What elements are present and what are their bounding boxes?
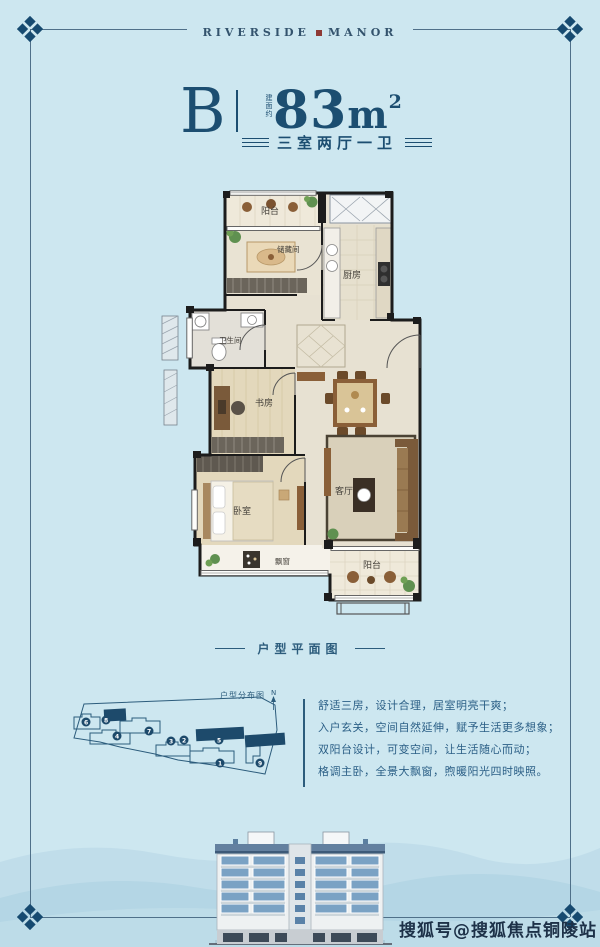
unit-layout-row: 三室两厅一卫 [242,132,432,153]
svg-text:2: 2 [182,737,186,744]
brand-title: RIVERSIDEMANOR [187,26,414,39]
frame-left-line [30,29,31,917]
caption-text: 户型平面图 [257,640,342,657]
building-elevation-art [203,826,398,947]
description-line: 入户玄关，空间自然延伸，赋予生活更多想象； [318,721,548,734]
svg-text:N: N [271,689,277,697]
room-label-balcony-top: 阳台 [261,205,279,217]
brand-square-icon [316,30,322,36]
unit-layout: 三室两厅一卫 [277,132,397,153]
svg-text:5: 5 [217,737,221,744]
svg-text:1: 1 [218,760,222,767]
unit-letter: B [180,80,226,142]
corner-diamond-ornament [17,16,43,42]
room-label-bay-window: 飘窗 [275,556,290,566]
description-block: 舒适三房，设计合理，居室明亮干爽； 入户玄关，空间自然延伸，赋予生活更多想象； … [303,699,548,787]
brand-left: RIVERSIDE [203,26,310,39]
triple-lines-right [405,138,432,148]
svg-text:4: 4 [115,733,119,740]
description-line: 双阳台设计，可变空间，让生活随心而动； [318,743,548,756]
floor-plan-drawing: 阳台 储藏间 厨房 卫生间 书房 卧室 飘窗 客厅 阳台 [158,186,426,618]
svg-text:9: 9 [258,760,262,767]
site-plan-map: 户型分布图 N 6 8 4 7 3 2 5 1 9 [60,684,295,792]
header: RIVERSIDEMANOR [0,21,600,40]
watermark-text: 搜狐号@搜狐焦点铜陵站 [399,916,597,941]
room-label-study: 书房 [255,397,273,409]
corner-diamond-ornament [17,904,43,930]
unit-title-block: B 建面约 83m2 三室两厅一卫 [180,80,420,160]
room-label-balcony-bottom: 阳台 [363,559,381,571]
frame-right-line [570,29,571,917]
corner-diamond-ornament [557,16,583,42]
title-separator [236,90,238,132]
area-unit: m [347,92,388,137]
floor-plan-caption: 户型平面图 [0,640,600,657]
caption-dash-right [355,648,385,649]
brand-right: MANOR [328,26,398,39]
svg-text:8: 8 [104,717,108,724]
building-number-badges: 6 8 4 7 3 2 5 1 9 [82,716,265,768]
room-label-living-room: 客厅 [335,485,353,497]
room-label-bedroom: 卧室 [233,505,251,517]
room-label-kitchen: 厨房 [343,269,361,281]
area-exponent: 2 [389,91,403,113]
svg-text:7: 7 [147,728,151,735]
compass-icon: N [271,689,277,710]
room-label-bathroom: 卫生间 [219,335,242,345]
svg-text:3: 3 [169,738,173,745]
description-line: 格调主卧，全景大飘窗，煦暖阳光四时映照。 [318,765,548,778]
room-label-storage: 储藏间 [277,244,300,254]
triple-lines-left [242,138,269,148]
caption-dash-left [215,648,245,649]
poster-page: { "brand": {"left": "RIVERSIDE", "right"… [0,0,600,947]
svg-text:6: 6 [84,719,88,726]
description-line: 舒适三房，设计合理，居室明亮干爽； [318,699,548,712]
